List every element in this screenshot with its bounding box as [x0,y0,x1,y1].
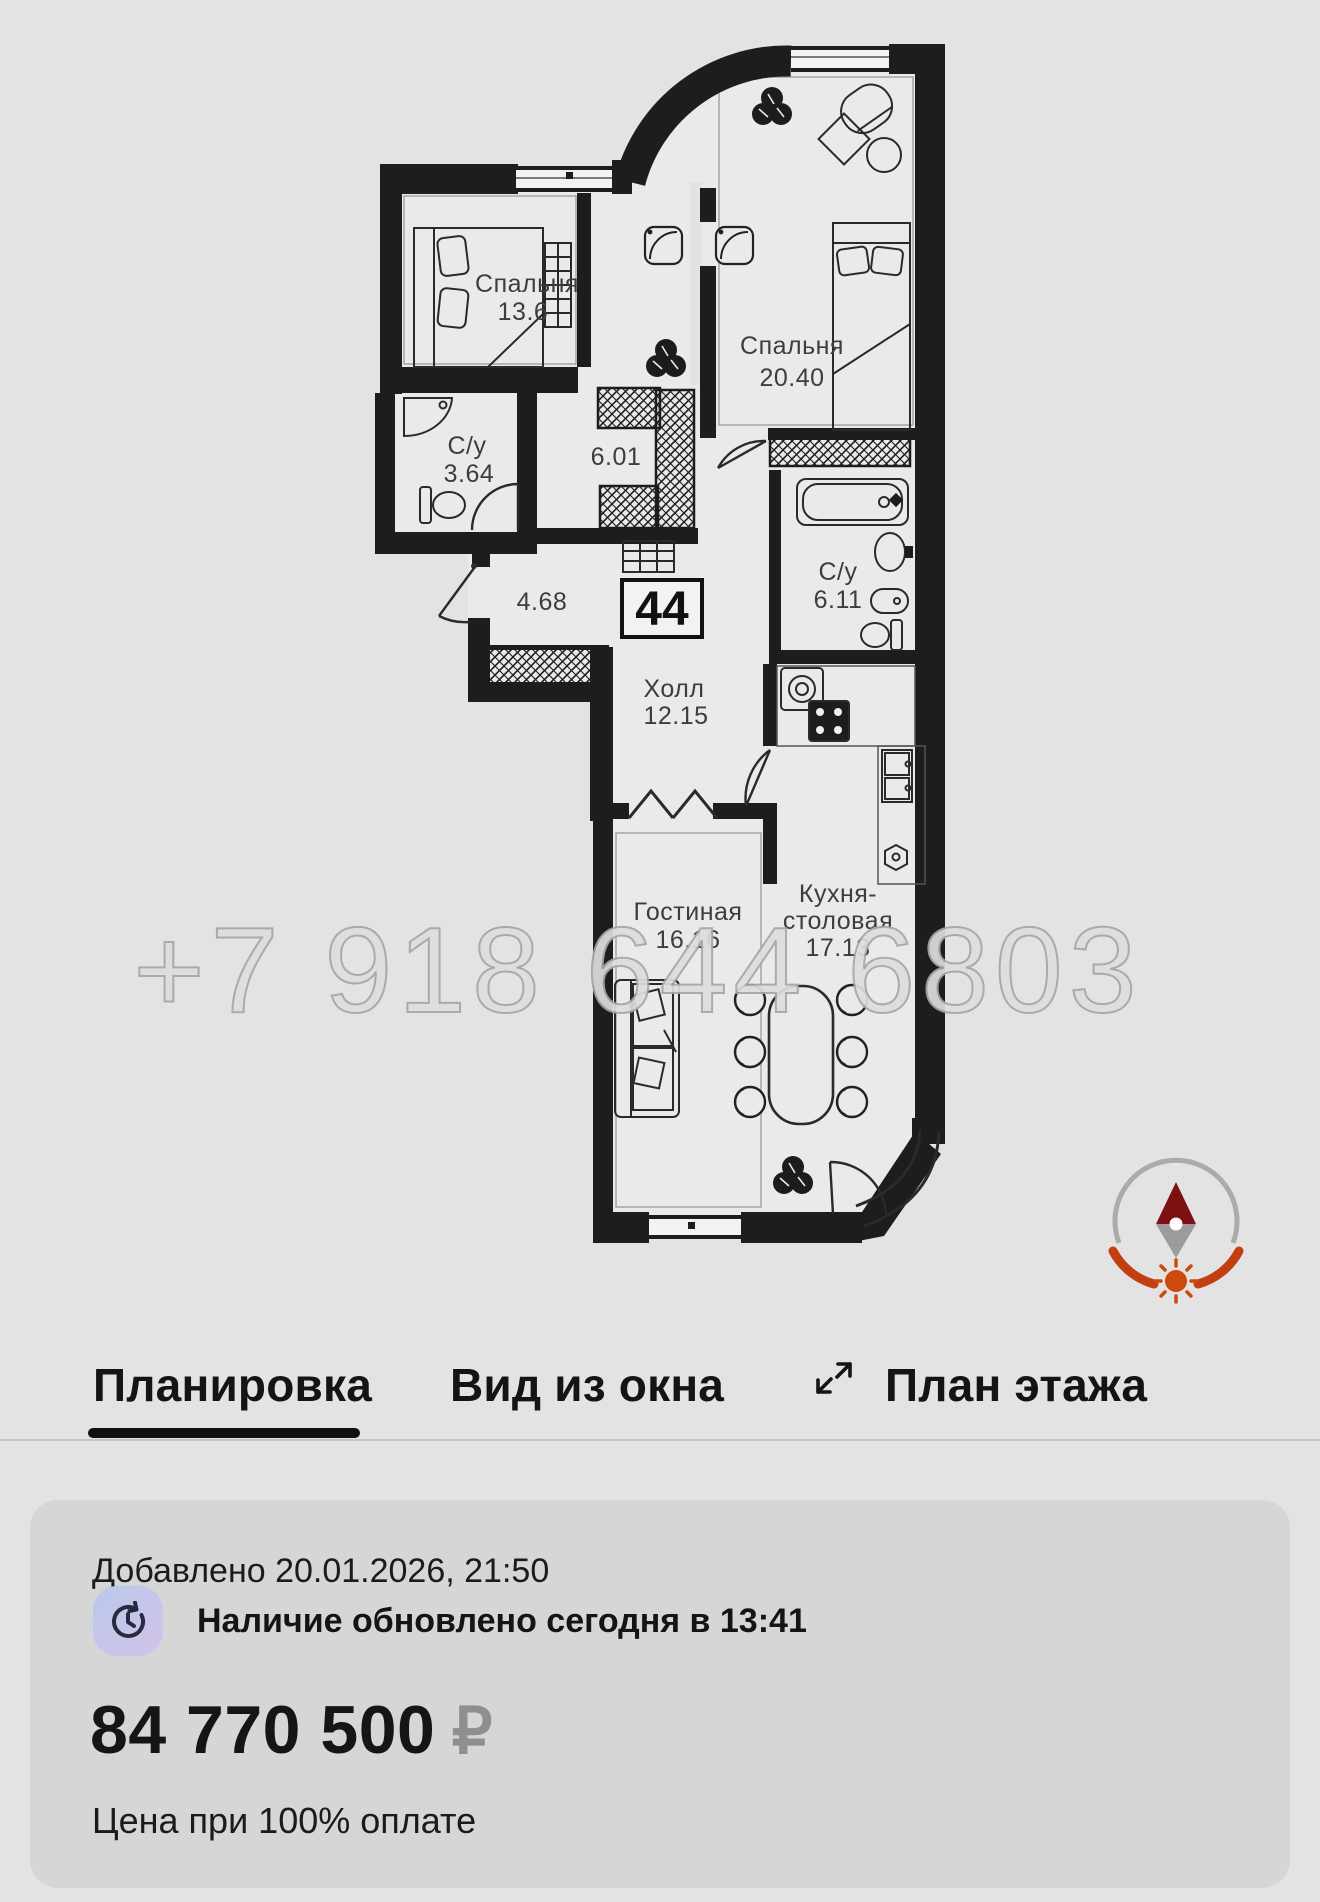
watermark-phone: +7 918 644 6803 [133,902,1142,1038]
price-row: 84 770 500 ₽ [90,1691,493,1769]
bathroom2-name: С/у [819,558,858,586]
bedroom1-area: 13.6 [498,298,549,326]
bedroom2-name: Спальня [740,332,844,360]
availability-line: Наличие обновлено сегодня в 13:41 [197,1602,807,1641]
price-value: 84 770 500 [90,1692,435,1768]
listing-details-card: Добавлено 20.01.2026, 21:50 Наличие обно… [30,1500,1290,1888]
hall-name: Холл [644,675,705,703]
tab-plan-etazha[interactable]: План этажа [885,1358,1147,1412]
section-divider [0,1439,1320,1441]
compass-sun-icon [1155,1260,1197,1302]
compass-icon [1113,1160,1239,1302]
gallery-tabs: Планировка Вид из окна План этажа [0,1352,1320,1440]
apartment-number-badge: 44 [622,580,702,637]
bathroom1-area: 3.64 [444,460,495,488]
floorplan-viewer[interactable]: Спальня 13.6 Спальня 20.40 С/у 3.64 6.01… [0,0,1320,1345]
expand-icon[interactable] [812,1356,856,1400]
tab-planirovka[interactable]: Планировка [93,1358,372,1412]
clock-refresh-icon [108,1601,148,1641]
apartment-number: 44 [635,583,689,636]
closet-area: 6.01 [591,443,642,471]
bedroom2-area: 20.40 [759,364,824,392]
bathroom1-name: С/у [448,432,487,460]
hall-area: 12.15 [643,702,708,730]
tab-vid-iz-okna[interactable]: Вид из окна [450,1358,724,1412]
price-note: Цена при 100% оплате [92,1800,476,1842]
bedroom1-name: Спальня [475,270,579,298]
floorplan-image: Спальня 13.6 Спальня 20.40 С/у 3.64 6.01… [0,0,1320,1345]
bathroom2-area: 6.11 [814,586,863,614]
active-tab-underline [88,1428,360,1438]
currency-ruble-sign: ₽ [452,1695,493,1767]
corridor-area: 4.68 [517,588,568,616]
availability-badge [93,1586,163,1656]
